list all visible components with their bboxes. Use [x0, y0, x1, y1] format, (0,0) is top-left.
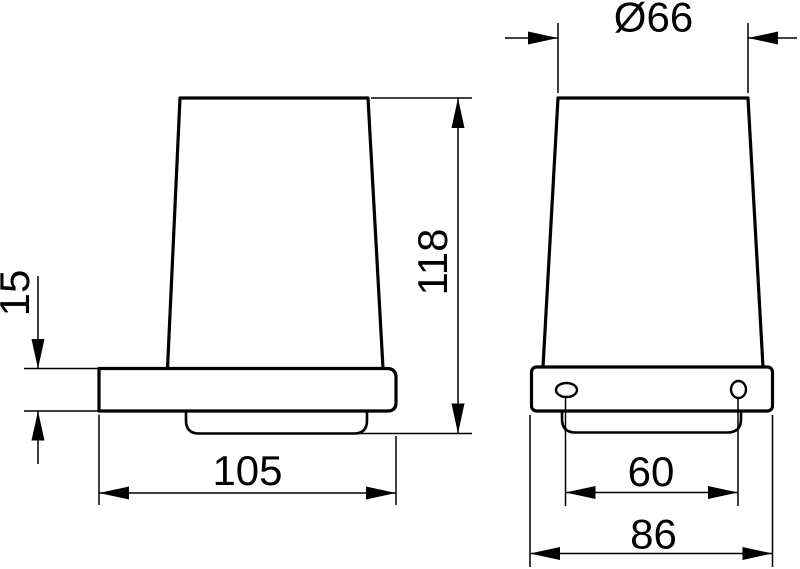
arrowhead-right — [743, 547, 773, 560]
drawing-canvas: 15 118 105 — [0, 0, 800, 569]
tumbler-outline-side — [168, 98, 384, 369]
dimension-label-60: 60 — [628, 448, 675, 495]
dimension-bracket-thickness: 15 — [0, 270, 99, 464]
side-view: 15 118 105 — [0, 98, 472, 505]
arrowhead-right — [366, 487, 396, 500]
technical-drawing: 15 118 105 — [0, 0, 800, 569]
dimension-total-height: 118 — [350, 98, 472, 434]
arrowhead-up — [452, 98, 465, 128]
arrowhead-left — [99, 487, 129, 500]
arrowhead-right — [528, 32, 558, 45]
arrowhead-down — [452, 404, 465, 434]
dimension-label-diameter: Ø66 — [614, 0, 693, 41]
dimension-label-118: 118 — [409, 229, 456, 296]
dimension-label-105: 105 — [212, 447, 282, 494]
dimension-label-15: 15 — [0, 270, 38, 317]
arrowhead-down — [32, 339, 45, 369]
tumbler-tray-side — [186, 411, 367, 434]
dimension-label-86: 86 — [630, 511, 677, 558]
arrowhead-left — [748, 32, 778, 45]
front-view: Ø66 60 86 — [505, 0, 797, 567]
arrowhead-left — [530, 547, 560, 560]
tumbler-outline-front — [543, 98, 763, 367]
arrowhead-right — [708, 486, 738, 499]
arrowhead-up — [32, 411, 45, 441]
mounting-slot-left — [556, 383, 577, 397]
dimension-depth: 105 — [99, 415, 396, 506]
tumbler-tray-front — [562, 411, 741, 433]
dimension-top-diameter: Ø66 — [505, 0, 797, 93]
wall-bracket-front — [532, 367, 773, 411]
mounting-hole-right — [731, 381, 746, 398]
wall-bracket-side — [99, 369, 396, 412]
arrowhead-left — [566, 486, 596, 499]
